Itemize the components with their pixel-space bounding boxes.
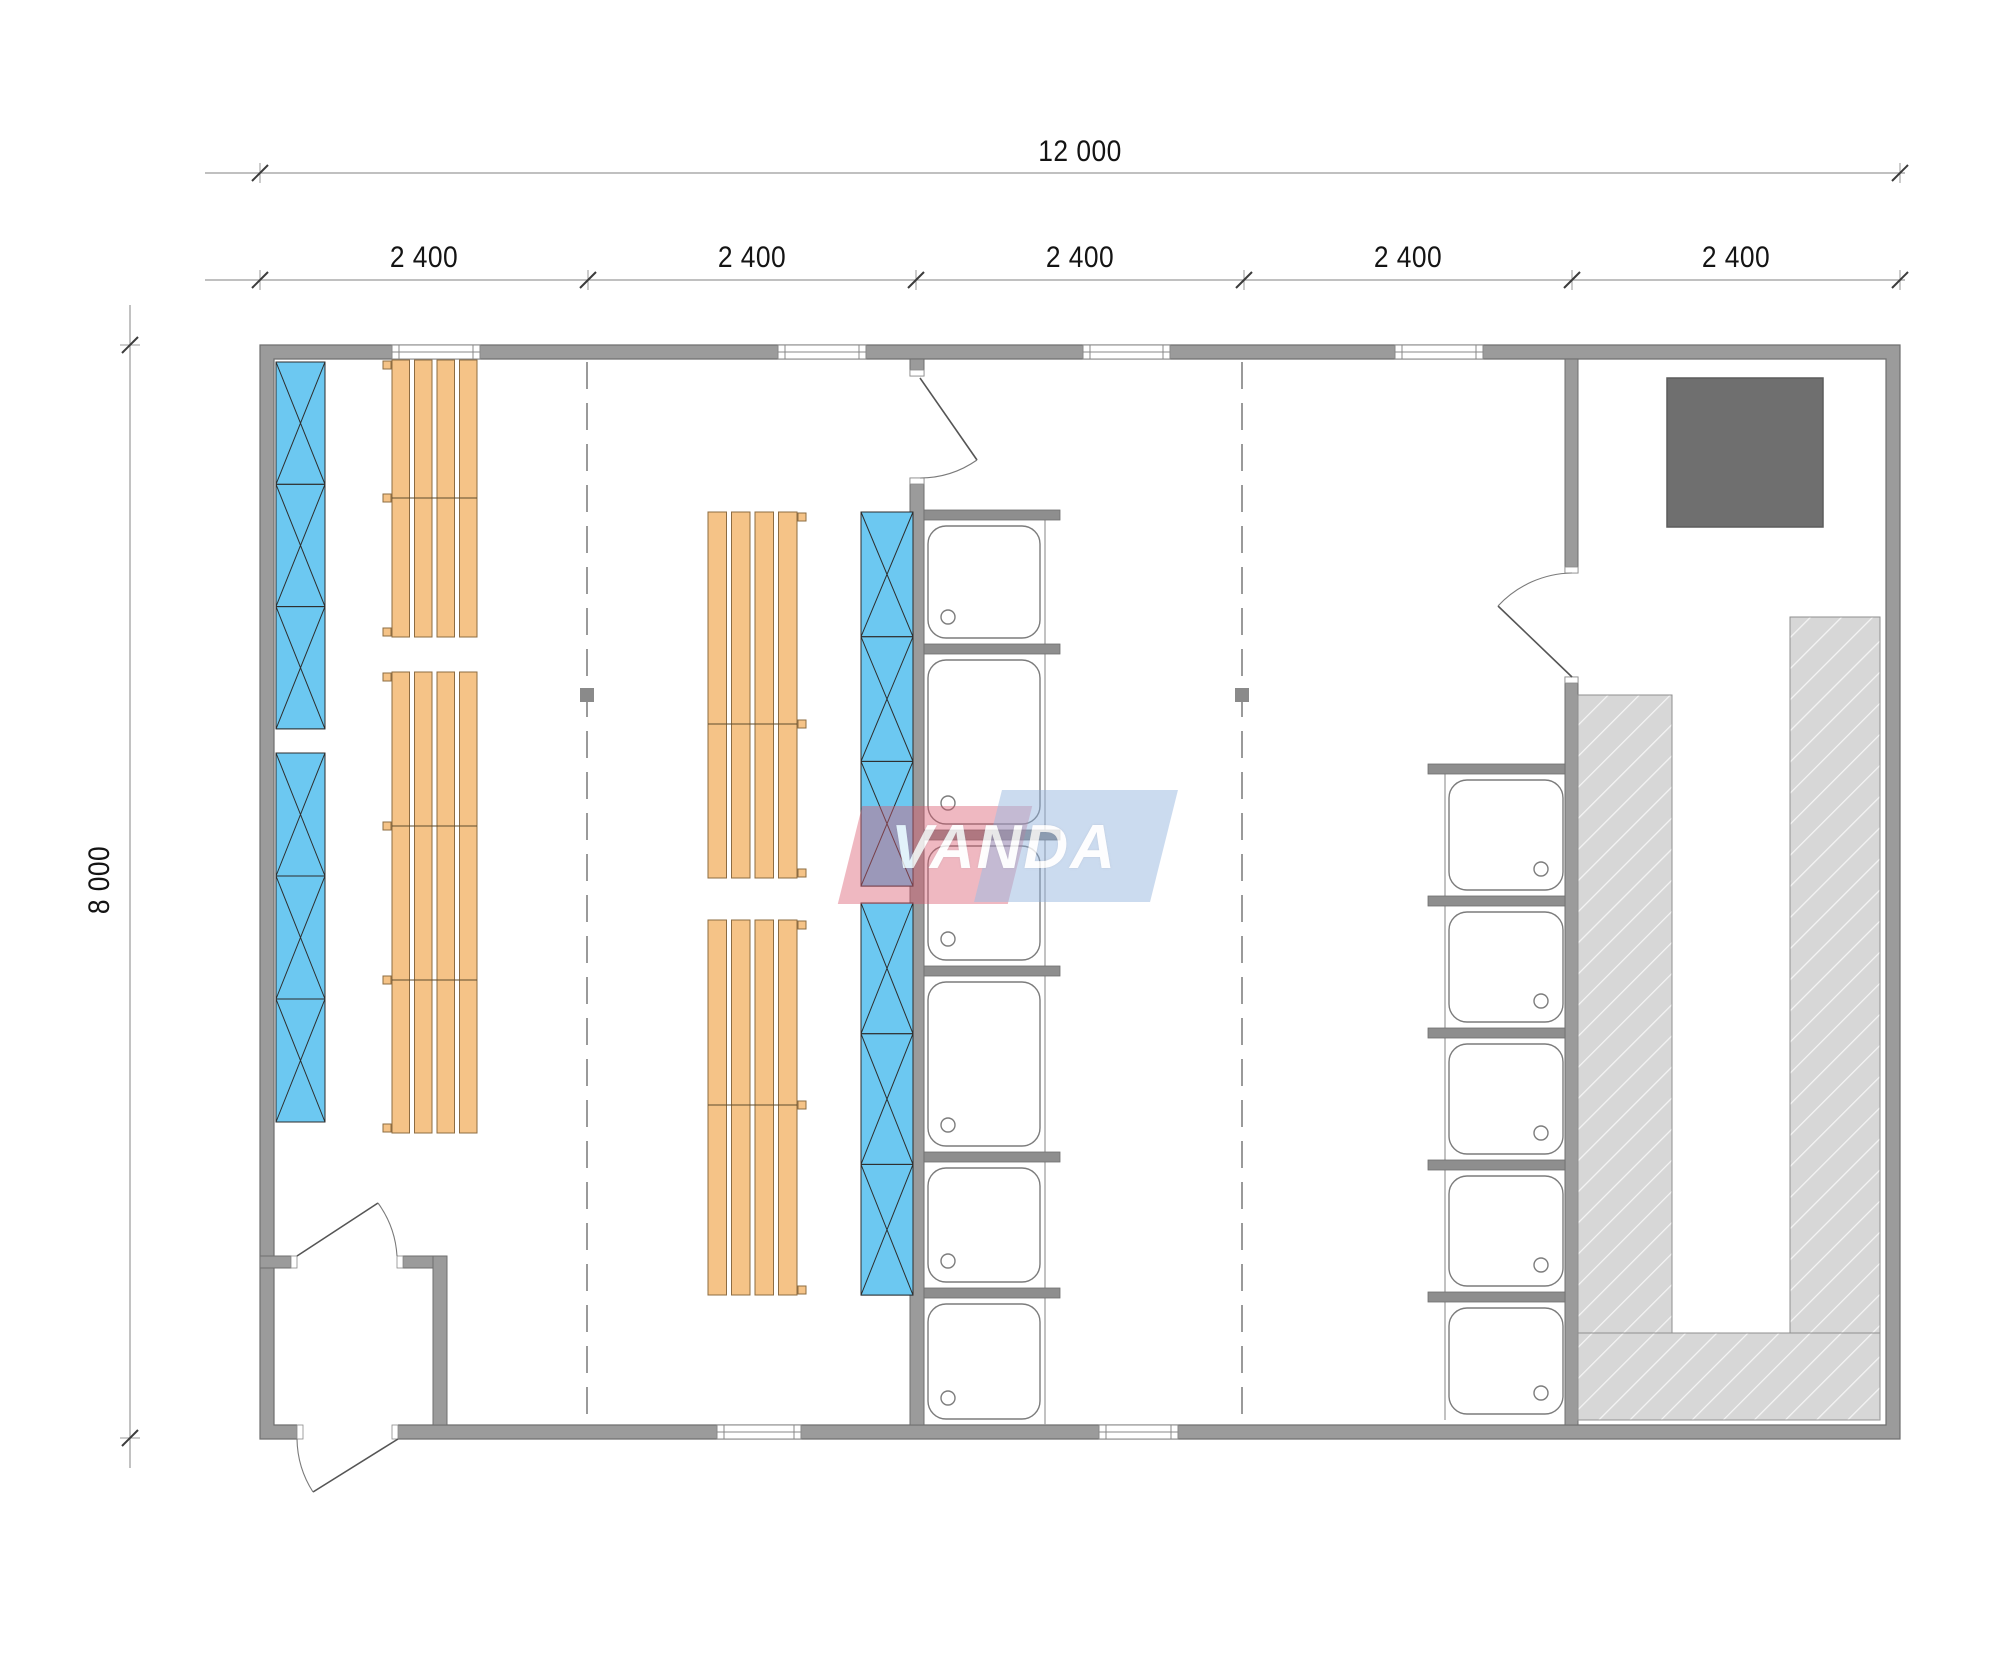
dimension-total-width: 12 000 [1038,135,1121,169]
shower-stalls-right [1428,764,1565,1420]
brand-logo-text: VANDA [846,786,1162,908]
shower-stalls-left [924,510,1060,1425]
dimension-module: 2 400 [1702,241,1770,275]
floor-plan-canvas: 12 000 2 400 2 400 2 400 2 400 2 400 8 0… [0,0,2000,1669]
dimension-module: 2 400 [390,241,458,275]
dimension-module: 2 400 [718,241,786,275]
brand-watermark: VANDA [846,786,1162,908]
dimension-module: 2 400 [1374,241,1442,275]
sauna-room [1578,378,1880,1420]
dimension-module: 2 400 [1046,241,1114,275]
dimension-total-height: 8 000 [83,846,117,914]
locker-panels [276,362,913,1295]
wood-benches [383,360,806,1295]
